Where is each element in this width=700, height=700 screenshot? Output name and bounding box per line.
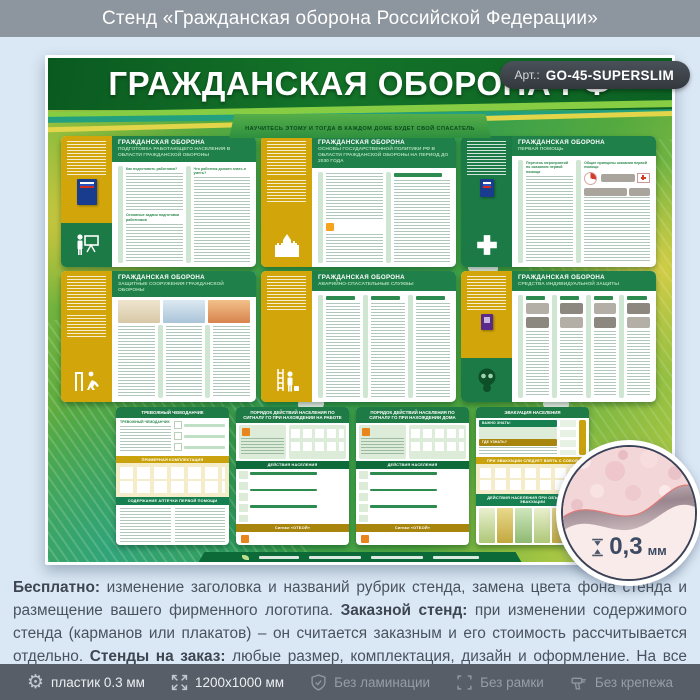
mini-poster-actions-at-work: ПОРЯДОК ДЕЙСТВИЙ НАСЕЛЕНИЯ ПО СИГНАЛУ ГО… xyxy=(236,407,349,545)
warning-icon xyxy=(326,223,334,231)
column-heading: Основные задачи подготовки работников xyxy=(126,213,183,222)
text-placeholder xyxy=(326,173,383,220)
action-group xyxy=(370,471,466,488)
equipment-image xyxy=(627,317,650,328)
section-strip xyxy=(386,172,391,263)
mini-section-label: ТРЕВОЖНЫЙ ЧЕМОДАНЧИК xyxy=(120,420,171,424)
stand-motto: НАУЧИТЕСЬ ЭТОМУ И ТОГДА В КАЖДОМ ДОМЕ БУ… xyxy=(245,126,475,132)
section-strip xyxy=(552,295,557,398)
poster-heading: ГРАЖДАНСКАЯ ОБОРОНА ПОДГОТОВКА РАБОТАЮЩЕ… xyxy=(112,136,256,162)
thickness-icon xyxy=(591,538,604,557)
mini-poster-title: ПОРЯДОК ДЕЙСТВИЙ НАСЕЛЕНИЯ ПО СИГНАЛУ ГО… xyxy=(356,407,469,423)
info-block xyxy=(479,427,557,439)
equipment-image xyxy=(627,303,650,314)
description-bold: Бесплатно: xyxy=(13,579,100,596)
spec-material: ⚙ пластик 0.3 мм xyxy=(27,673,145,692)
pictogram-block xyxy=(461,223,512,267)
rescuer-icon xyxy=(274,367,300,393)
poster-sidebar xyxy=(461,136,512,267)
mini-poster-title: ПОРЯДОК ДЕЙСТВИЙ НАСЕЛЕНИЯ ПО СИГНАЛУ ГО… xyxy=(236,407,349,423)
section-strip xyxy=(205,325,210,398)
poster-row-3: ТРЕВОЖНЫЙ ЧЕМОДАНЧИК ТРЕВОЖНЫЙ ЧЕМОДАНЧИ… xyxy=(116,407,589,545)
thickness-unit: мм xyxy=(648,543,667,559)
text-placeholder xyxy=(120,508,171,542)
section-strip xyxy=(118,166,123,263)
law-book-image xyxy=(480,179,494,197)
equipment-image xyxy=(526,317,549,328)
text-placeholder xyxy=(371,303,405,397)
poster-title: ГРАЖДАНСКАЯ ОБОРОНА xyxy=(318,139,450,146)
poster-title: ГРАЖДАНСКАЯ ОБОРОНА xyxy=(118,274,250,281)
kit-icon-grid xyxy=(116,463,229,497)
frame-corners-icon xyxy=(456,674,473,691)
heading-placeholder xyxy=(560,296,579,300)
poster-subtitle: СРЕДСТВА ИНДИВИДУАЛЬНОЙ ЗАЩИТЫ xyxy=(518,282,650,288)
heading-placeholder xyxy=(627,296,646,300)
icon-row xyxy=(291,429,344,438)
stand-motto-strip: НАУЧИТЕСЬ ЭТОМУ И ТОГДА В КАЖДОМ ДОМЕ БУ… xyxy=(229,114,491,138)
contact-placeholder xyxy=(309,556,361,559)
text-placeholder xyxy=(267,276,306,310)
signal-block xyxy=(239,425,286,459)
medical-cross-icon xyxy=(475,233,499,257)
figure-placeholder xyxy=(584,188,627,196)
illustration xyxy=(163,300,205,323)
spec-no-lamination: Без ламинации xyxy=(310,674,430,691)
text-placeholder xyxy=(416,303,450,397)
equipment-image xyxy=(594,303,617,314)
text-placeholder xyxy=(126,173,183,211)
action-group xyxy=(250,488,346,505)
section-strip xyxy=(576,160,581,263)
spec-label: 1200х1000 мм xyxy=(195,675,284,690)
contact-placeholder xyxy=(433,556,479,559)
article-value: GO-45-SUPERSLIM xyxy=(546,68,674,83)
spec-no-frame: Без рамки xyxy=(456,674,544,691)
spec-label: пластик 0.3 мм xyxy=(51,675,145,690)
mini-section-bar: ГДЕ УЗНАТЬ? xyxy=(479,439,557,446)
page-title: Стенд «Гражданская оборона Российской Фе… xyxy=(102,8,598,30)
action-group xyxy=(370,504,466,521)
list-item xyxy=(174,443,225,451)
icon-column xyxy=(560,420,576,455)
gas-mask-icon xyxy=(474,367,500,393)
first-aid-figures xyxy=(584,171,650,186)
description-bold: Стенды на заказ: xyxy=(90,648,226,665)
icon-column xyxy=(239,471,248,522)
poster-first-aid: ГРАЖДАНСКАЯ ОБОРОНА ПЕРВАЯ ПОМОЩЬ Перече… xyxy=(461,136,656,267)
poster-rescue-services: ГРАЖДАНСКАЯ ОБОРОНА АВАРИЙНО-СПАСАТЕЛЬНЫ… xyxy=(261,271,456,402)
equipment-image xyxy=(594,317,617,328)
poster-subtitle: ПЕРВАЯ ПОМОЩЬ xyxy=(518,147,650,153)
heading-placeholder xyxy=(371,296,400,300)
text-placeholder xyxy=(67,141,106,175)
icon-row xyxy=(120,467,225,479)
equipment-image xyxy=(526,303,549,314)
action-group xyxy=(250,471,346,488)
poster-row-2: ГРАЖДАНСКАЯ ОБОРОНА ЗАЩИТНЫЕ СООРУЖЕНИЯ … xyxy=(61,271,656,402)
stand-footer-band xyxy=(198,552,522,563)
pictogram-block xyxy=(61,223,112,267)
kremlin-icon xyxy=(273,232,301,258)
speaker-icon xyxy=(241,535,249,543)
icon-block xyxy=(289,425,346,459)
spec-dimensions: 1200х1000 мм xyxy=(171,674,284,691)
mini-poster-title: ЭВАКУАЦИЯ НАСЕЛЕНИЯ xyxy=(476,407,589,418)
material-sample: 0,3 мм xyxy=(561,445,697,581)
gear-icon: ⚙ xyxy=(27,673,44,692)
text-placeholder xyxy=(467,276,506,310)
heading-placeholder xyxy=(594,296,613,300)
thickness-value: 0,3 xyxy=(609,535,642,559)
equipment-image xyxy=(560,303,583,314)
fastening-icon xyxy=(570,674,588,691)
icon-row xyxy=(120,481,225,493)
law-book-image xyxy=(77,179,97,205)
poster-sidebar xyxy=(61,136,112,267)
shelter-icon xyxy=(73,368,101,392)
shelter-illustrations xyxy=(112,297,256,323)
mini-section-bar: ПРИМЕРНАЯ КОМПЛЕКТАЦИЯ xyxy=(116,456,229,464)
column-heading: Общие принципы оказания первой помощи xyxy=(584,161,650,170)
poster-title: ГРАЖДАНСКАЯ ОБОРОНА xyxy=(518,139,650,146)
first-aid-figures xyxy=(584,188,650,196)
icon-row xyxy=(411,442,464,451)
speaker-icon xyxy=(361,535,369,543)
illustration xyxy=(497,508,513,543)
maker-logo xyxy=(242,555,249,560)
text-placeholder xyxy=(560,331,583,397)
contact-placeholder xyxy=(371,556,423,559)
mini-section-bar: Сигнал «ОТБОЙ» xyxy=(356,524,469,532)
poster-sidebar xyxy=(261,136,312,267)
section-strip xyxy=(408,295,413,398)
icon-block xyxy=(409,425,466,459)
figure-placeholder xyxy=(629,188,650,196)
text-placeholder xyxy=(120,426,171,453)
dimensions-icon xyxy=(171,674,188,691)
illustration xyxy=(118,300,160,323)
list-item xyxy=(174,421,225,429)
mini-section-bar: ВАЖНО ЗНАТЬ! xyxy=(479,420,557,427)
poster-title: ГРАЖДАНСКАЯ ОБОРОНА xyxy=(518,274,650,281)
text-placeholder xyxy=(326,234,383,262)
equipment-image xyxy=(560,317,583,328)
text-placeholder xyxy=(267,180,306,202)
description-bold: Заказной стенд: xyxy=(341,602,468,619)
evacuation-ways-strip xyxy=(579,420,586,455)
poster-subtitle: ОСНОВЫ ГОСУДАРСТВЕННОЙ ПОЛИТИКИ РФ В ОБЛ… xyxy=(318,147,450,165)
mini-poster-emergency-case: ТРЕВОЖНЫЙ ЧЕМОДАНЧИК ТРЕВОЖНЫЙ ЧЕМОДАНЧИ… xyxy=(116,407,229,545)
text-placeholder xyxy=(584,197,650,263)
section-strip xyxy=(158,325,163,398)
section-strip xyxy=(518,295,523,398)
column-heading: Что работник должен знать и уметь? xyxy=(194,167,251,176)
poster-sidebar xyxy=(61,271,112,402)
contact-placeholder xyxy=(259,556,299,559)
poster-state-policy: ГРАЖДАНСКАЯ ОБОРОНА ОСНОВЫ ГОСУДАРСТВЕНН… xyxy=(261,136,456,267)
poster-sidebar xyxy=(261,271,312,402)
text-placeholder xyxy=(326,303,360,397)
spec-bar: ⚙ пластик 0.3 мм 1200х1000 мм Без ламина… xyxy=(0,664,700,700)
law-book-image xyxy=(481,314,493,330)
poster-shelters: ГРАЖДАНСКАЯ ОБОРОНА ЗАЩИТНЫЕ СООРУЖЕНИЯ … xyxy=(61,271,256,402)
icon-row xyxy=(411,429,464,438)
icon-column xyxy=(359,471,368,522)
mini-section-bar: СОДЕРЖАНИЕ АПТЕЧКИ ПЕРВОЙ ПОМОЩИ xyxy=(116,497,229,505)
mini-section-bar: ДЕЙСТВИЯ НАСЕЛЕНИЯ xyxy=(356,461,469,469)
text-placeholder xyxy=(267,141,306,175)
illustration xyxy=(515,508,531,543)
poster-subtitle: АВАРИЙНО-СПАСАТЕЛЬНЫЕ СЛУЖБЫ xyxy=(318,282,450,288)
icon-row xyxy=(291,442,344,451)
speaker-icon xyxy=(242,428,250,436)
text-placeholder xyxy=(467,141,506,175)
spec-label: Без рамки xyxy=(480,675,544,690)
first-aid-kit-figure xyxy=(637,173,650,183)
poster-training: ГРАЖДАНСКАЯ ОБОРОНА ПОДГОТОВКА РАБОТАЮЩЕ… xyxy=(61,136,256,267)
action-group xyxy=(250,504,346,521)
mini-section-bar: Сигнал «ОТБОЙ» xyxy=(236,524,349,532)
section-strip xyxy=(318,172,323,263)
section-strip xyxy=(619,295,624,398)
illustration xyxy=(208,300,250,323)
speaker-icon xyxy=(362,428,370,436)
text-placeholder xyxy=(479,447,557,454)
presenter-icon xyxy=(74,232,100,258)
list-item xyxy=(174,432,225,440)
heading-placeholder xyxy=(416,296,445,300)
poster-content: ГРАЖДАНСКАЯ ОБОРОНА ПОДГОТОВКА РАБОТАЮЩЕ… xyxy=(112,136,256,267)
product-card: Стенд «Гражданская оборона Российской Фе… xyxy=(0,0,700,700)
text-placeholder xyxy=(118,326,155,397)
text-placeholder xyxy=(594,331,617,397)
mini-section-bar: ДЕЙСТВИЯ НАСЕЛЕНИЯ xyxy=(236,461,349,469)
poster-subtitle: ПОДГОТОВКА РАБОТАЮЩЕГО НАСЕЛЕНИЯ В ОБЛАС… xyxy=(118,147,250,159)
text-placeholder xyxy=(126,224,183,262)
action-group xyxy=(370,488,466,505)
pictogram-block xyxy=(261,223,312,267)
poster-title: ГРАЖДАНСКАЯ ОБОРОНА xyxy=(318,274,450,281)
text-placeholder xyxy=(361,438,404,456)
illustration xyxy=(479,508,495,543)
text-placeholder xyxy=(175,508,226,542)
text-placeholder xyxy=(213,326,250,397)
column-heading: Перечень мероприятий по оказанию первой … xyxy=(526,161,573,174)
article-label: Арт.: xyxy=(514,68,539,82)
spec-no-fastening: Без крепежа xyxy=(570,674,673,691)
poster-subtitle: ЗАЩИТНЫЕ СООРУЖЕНИЯ ГРАЖДАНСКОЙ ОБОРОНЫ xyxy=(118,282,250,294)
text-placeholder xyxy=(241,438,284,456)
material-inset: 0,3 мм xyxy=(556,440,700,586)
text-placeholder xyxy=(627,331,650,397)
text-placeholder xyxy=(526,176,573,262)
pictogram-block xyxy=(261,358,312,402)
mini-section-bar: ПРИ ЭВАКУАЦИИ СЛЕДУЕТ ВЗЯТЬ С СОБОЙ xyxy=(476,457,589,465)
poster-row-1: ГРАЖДАНСКАЯ ОБОРОНА ПОДГОТОВКА РАБОТАЮЩЕ… xyxy=(61,136,656,267)
section-strip xyxy=(186,166,191,263)
heading-placeholder xyxy=(526,296,545,300)
shield-check-icon xyxy=(310,674,327,691)
thickness-label: 0,3 мм xyxy=(563,535,695,559)
text-placeholder xyxy=(526,331,549,397)
text-placeholder xyxy=(166,326,203,397)
poster-protective-equipment: ГРАЖДАНСКАЯ ОБОРОНА СРЕДСТВА ИНДИВИДУАЛЬ… xyxy=(461,271,656,402)
section-strip xyxy=(586,295,591,398)
poster-title: ГРАЖДАНСКАЯ ОБОРОНА xyxy=(118,139,250,146)
section-strip xyxy=(363,295,368,398)
poster-sidebar xyxy=(461,271,512,402)
figure-placeholder xyxy=(601,174,635,182)
article-badge: Арт.: GO-45-SUPERSLIM xyxy=(500,61,690,89)
spec-label: Без ламинации xyxy=(334,675,430,690)
heading-placeholder xyxy=(326,296,355,300)
section-strip xyxy=(518,160,523,263)
text-placeholder xyxy=(67,315,106,339)
text-placeholder xyxy=(67,276,106,310)
text-placeholder xyxy=(194,177,251,262)
pictogram-block xyxy=(61,358,112,402)
spec-label: Без крепежа xyxy=(595,675,673,690)
signal-block xyxy=(359,425,406,459)
pie-figure xyxy=(584,172,597,185)
column-heading: Как подготовить работника? xyxy=(126,167,183,171)
section-strip xyxy=(318,295,323,398)
pictogram-block xyxy=(461,358,512,402)
text-placeholder xyxy=(394,180,451,262)
mini-poster-title: ТРЕВОЖНЫЙ ЧЕМОДАНЧИК xyxy=(116,407,229,418)
page-title-bar: Стенд «Гражданская оборона Российской Фе… xyxy=(0,0,700,37)
mini-poster-actions-at-home: ПОРЯДОК ДЕЙСТВИЙ НАСЕЛЕНИЯ ПО СИГНАЛУ ГО… xyxy=(356,407,469,545)
illustration xyxy=(534,508,550,543)
heading-placeholder xyxy=(394,173,442,177)
